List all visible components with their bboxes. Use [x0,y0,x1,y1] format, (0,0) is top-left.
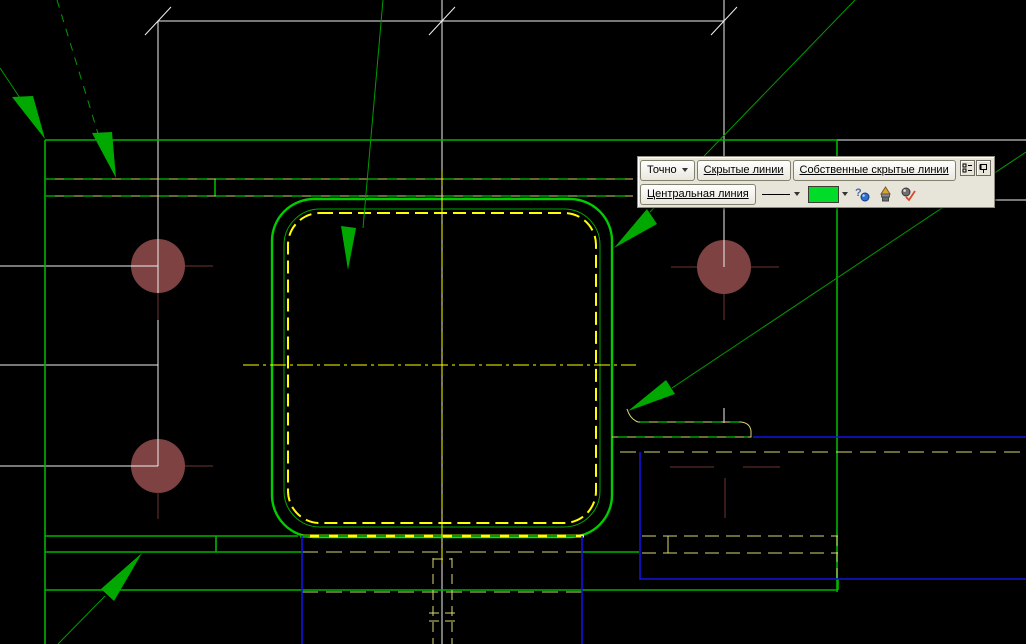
center-line-button[interactable]: Центральная линия [640,184,756,205]
dropdown-arrow-icon [842,192,848,196]
pin-icon[interactable] [976,160,991,176]
hidden-lines-button[interactable]: Скрытые линии [697,160,791,181]
properties-icon[interactable] [960,160,975,176]
color-dropdown[interactable] [808,186,848,203]
drawing-canvas[interactable] [0,0,1026,644]
leader-arrow[interactable] [341,0,383,270]
linestyle-dropdown[interactable] [762,185,802,204]
centerlines[interactable] [243,170,636,566]
floating-properties-toolbar: Точно Скрытые линии Собственные скрытые … [637,156,995,208]
brush-icon[interactable] [877,186,894,203]
construction-lines[interactable] [0,0,1026,644]
center-line-label: Центральная линия [647,188,749,200]
slot-hidden-dashed[interactable] [429,558,457,644]
help-query-icon[interactable]: ? [854,186,871,203]
leader-arrow[interactable] [614,0,855,248]
leader-arrows[interactable] [0,0,1026,644]
solid-line-sample-icon [762,194,790,195]
cad-drawing-window: Точно Скрытые линии Собственные скрытые … [0,0,1026,644]
leader-arrow[interactable] [0,68,45,139]
leader-arrow[interactable] [58,553,142,644]
dropdown-arrow-icon [682,168,688,172]
leader-arrow[interactable] [57,0,116,178]
own-hidden-lines-label: Собственные скрытые линии [800,164,949,176]
toolbar-window-buttons [959,160,991,176]
hole-axis-lines[interactable] [158,266,780,519]
hole-circle[interactable] [131,239,751,493]
blue-part-lines[interactable] [302,437,1026,644]
precision-label: Точно [647,164,677,176]
apply-check-icon[interactable] [900,186,917,203]
hidden-lines-label: Скрытые линии [704,164,784,176]
precision-dropdown[interactable]: Точно [640,160,695,181]
color-swatch [808,186,839,203]
flange-hidden-lines[interactable] [45,179,633,196]
dropdown-arrow-icon [794,192,800,196]
own-hidden-lines-button[interactable]: Собственные скрытые линии [793,160,956,181]
hook-flange-outline[interactable] [612,409,751,437]
